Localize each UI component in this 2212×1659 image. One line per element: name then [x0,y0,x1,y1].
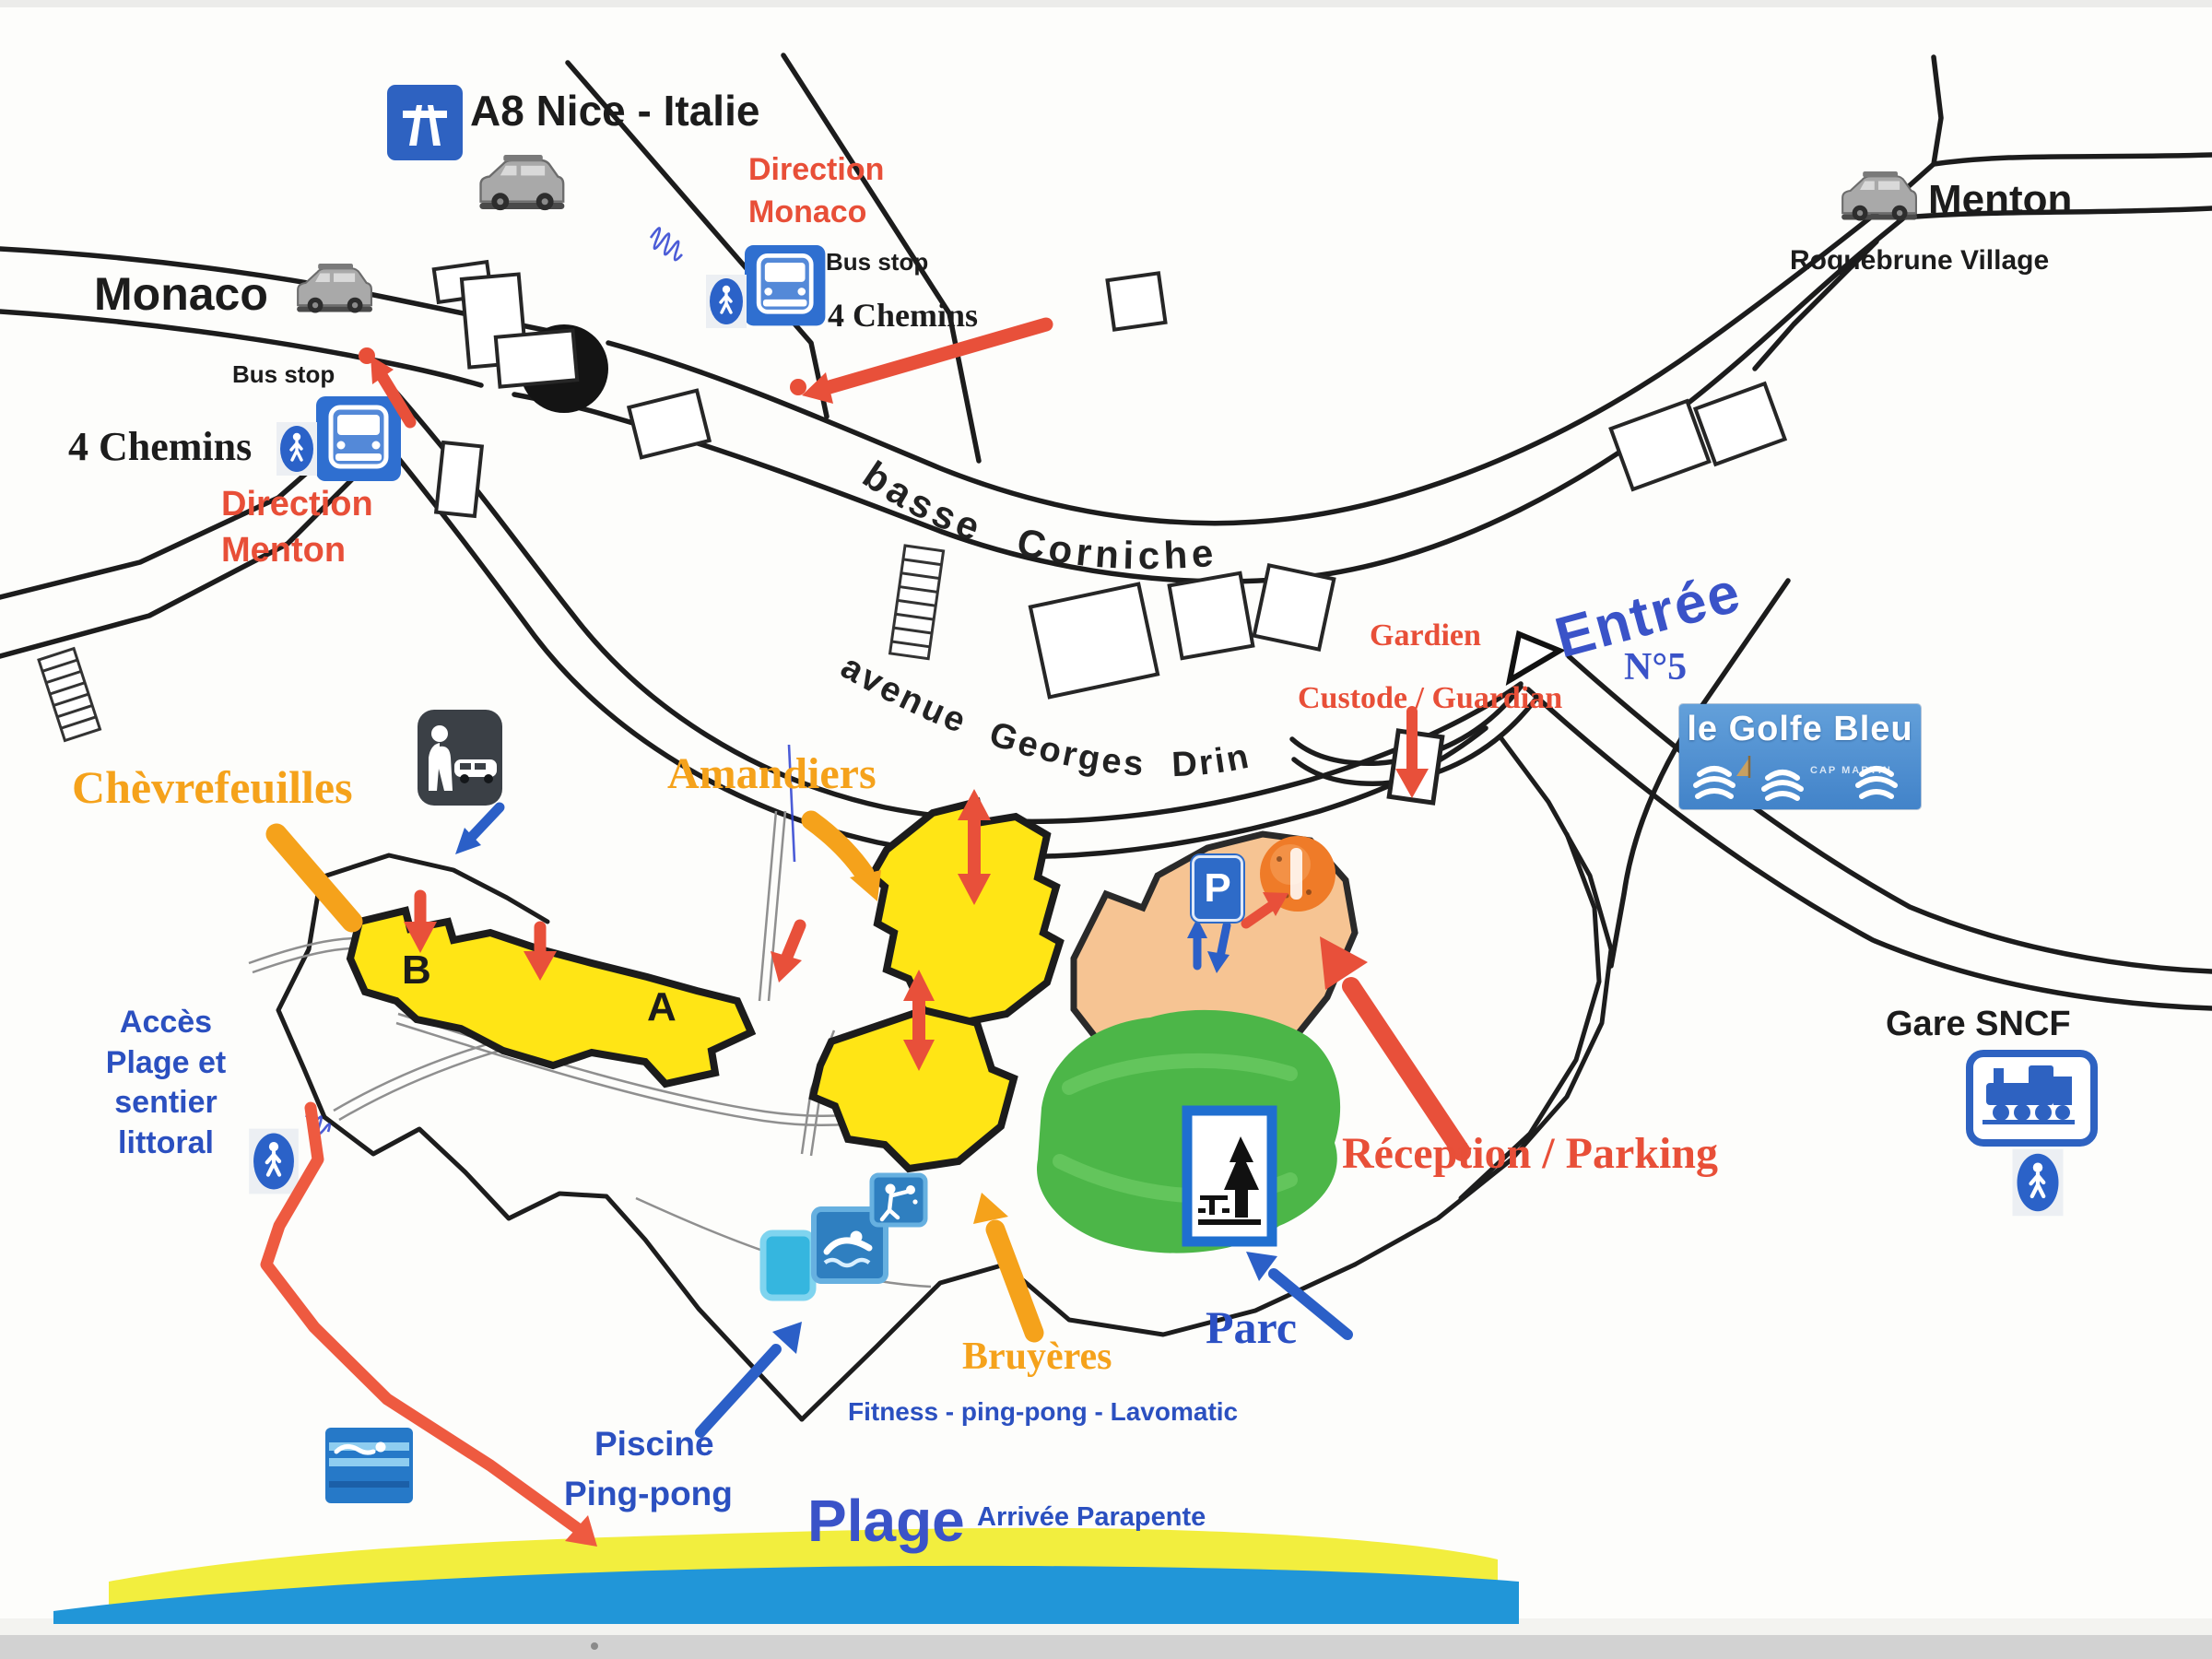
a8-label: A8 Nice - Italie [470,87,759,135]
pedestrian-icon [276,422,317,476]
entrance-arrow-icon [1510,634,1559,680]
parapente-label: Arrivée Parapente [977,1502,1206,1533]
pedestrian-icon [2013,1149,2064,1217]
building-outline [1695,383,1784,465]
arrowhead [973,1193,1008,1224]
direction-monaco-line2: Monaco [748,192,884,234]
parking-icon: P [1192,855,1243,922]
direction-monaco-label: Direction Monaco [748,149,884,234]
direction-menton-line2: Menton [221,527,373,573]
plage-label: Plage [807,1488,965,1556]
pedestrian-icon [706,275,747,328]
parc-label: Parc [1206,1301,1297,1355]
roquebrune-label: Roquebrune Village [1790,245,2049,277]
stairs-icon [39,649,100,741]
fitness-label: Fitness - ping-pong - Lavomatic [848,1397,1238,1427]
boundary-east [1355,737,1611,1265]
acces-line4: littoral [65,1124,267,1164]
acces-line2: Plage et [65,1043,267,1084]
bus-stop-left-label: Bus stop [232,361,335,389]
building-outline [1030,584,1158,698]
amandiers-label: Amandiers [667,748,877,799]
custode-label: Custode / Guardian [1298,680,1562,716]
car-icon [1841,171,1917,221]
chemins-left-label: 4 Chemins [68,424,252,471]
building-outline [1254,565,1335,649]
bus-stop-icon [745,245,825,325]
gare-sncf-label: Gare SNCF [1886,1005,2071,1045]
motorway-icon [387,85,463,160]
building-outline [436,442,482,516]
bus-stop-center-label: Bus stop [826,249,928,276]
direction-menton-line1: Direction [221,481,373,527]
map-canvas: basse Corniche avenue Georges Drin [0,0,2212,1659]
menton-label: Menton [1928,177,2072,224]
road-branch-north [1934,57,1941,164]
bruyeres-label: Bruyères [962,1335,1112,1379]
car-icon [479,155,564,210]
building-a-label: A [647,984,677,1031]
acces-plage-label: Accès Plage et sentier littoral [65,1003,267,1163]
boundary-southwest [324,1117,802,1419]
beach [53,1528,1519,1624]
boundary-west [278,877,324,1117]
scan-speck [591,1642,598,1650]
road-avenue-north [392,387,1521,821]
building-outline [1170,573,1253,658]
chemins-center-label: 4 Chemins [828,297,978,335]
building-outline [1611,401,1710,489]
piscine-label: Piscine [594,1425,714,1465]
park-picnic-icon [1187,1111,1272,1241]
arrow-piscine [700,1349,776,1432]
attended-parking-icon [418,710,502,806]
direction-monaco-line1: Direction [748,149,884,192]
building-chevrefeuilles [350,911,751,1084]
logo-title: le Golfe Bleu [1679,710,1921,749]
walkway [339,1045,518,1120]
scan-edge-top [0,0,2212,7]
building-amandiers [872,802,1060,1023]
reception-parking-label: Réception / Parking [1342,1128,1718,1179]
arrow-entrance-a2 [787,925,800,957]
pool-icon [763,1233,813,1298]
direction-menton-label: Direction Menton [221,481,373,573]
pingpong-icon [872,1175,925,1225]
pingpong-label: Ping-pong [564,1475,733,1514]
golfe-bleu-logo: le Golfe Bleu CAP MARTIN [1679,704,1921,809]
residence-buildings [350,802,1060,1169]
chevrefeuilles-label: Chèvrefeuilles [72,761,353,815]
walkway [759,811,776,1001]
sea-swim-icon [325,1428,413,1503]
stairs-icon [890,546,944,659]
arrowhead [771,951,802,982]
train-icon [1970,1053,2094,1143]
entree-number-label: N°5 [1624,645,1687,689]
pen-scribble [651,228,682,260]
arrow-amandiers [811,820,865,874]
building-outline [496,330,577,386]
acces-line1: Accès [65,1003,267,1043]
car-icon [297,264,372,313]
logo-sailboat-icon [1736,758,1749,776]
monaco-label: Monaco [94,268,268,322]
road-to-menton-north [1934,155,2212,164]
arrow-reception-big [1351,986,1462,1152]
arrow-bruyeres [995,1230,1034,1333]
footpath-line [266,1108,577,1528]
scan-shadow-bottom [0,1635,2212,1659]
building-b-label: B [402,947,431,994]
building-outline [629,391,709,458]
arrow-exit [468,807,500,841]
beach-footpath [266,1108,597,1547]
bus-stop-icon [316,396,401,481]
gardien-label: Gardien [1370,618,1481,653]
building-outline [1108,273,1166,329]
bus-stop-dot [790,379,806,395]
acces-line3: sentier [65,1083,267,1124]
logo-waves-icon [1679,754,1921,806]
